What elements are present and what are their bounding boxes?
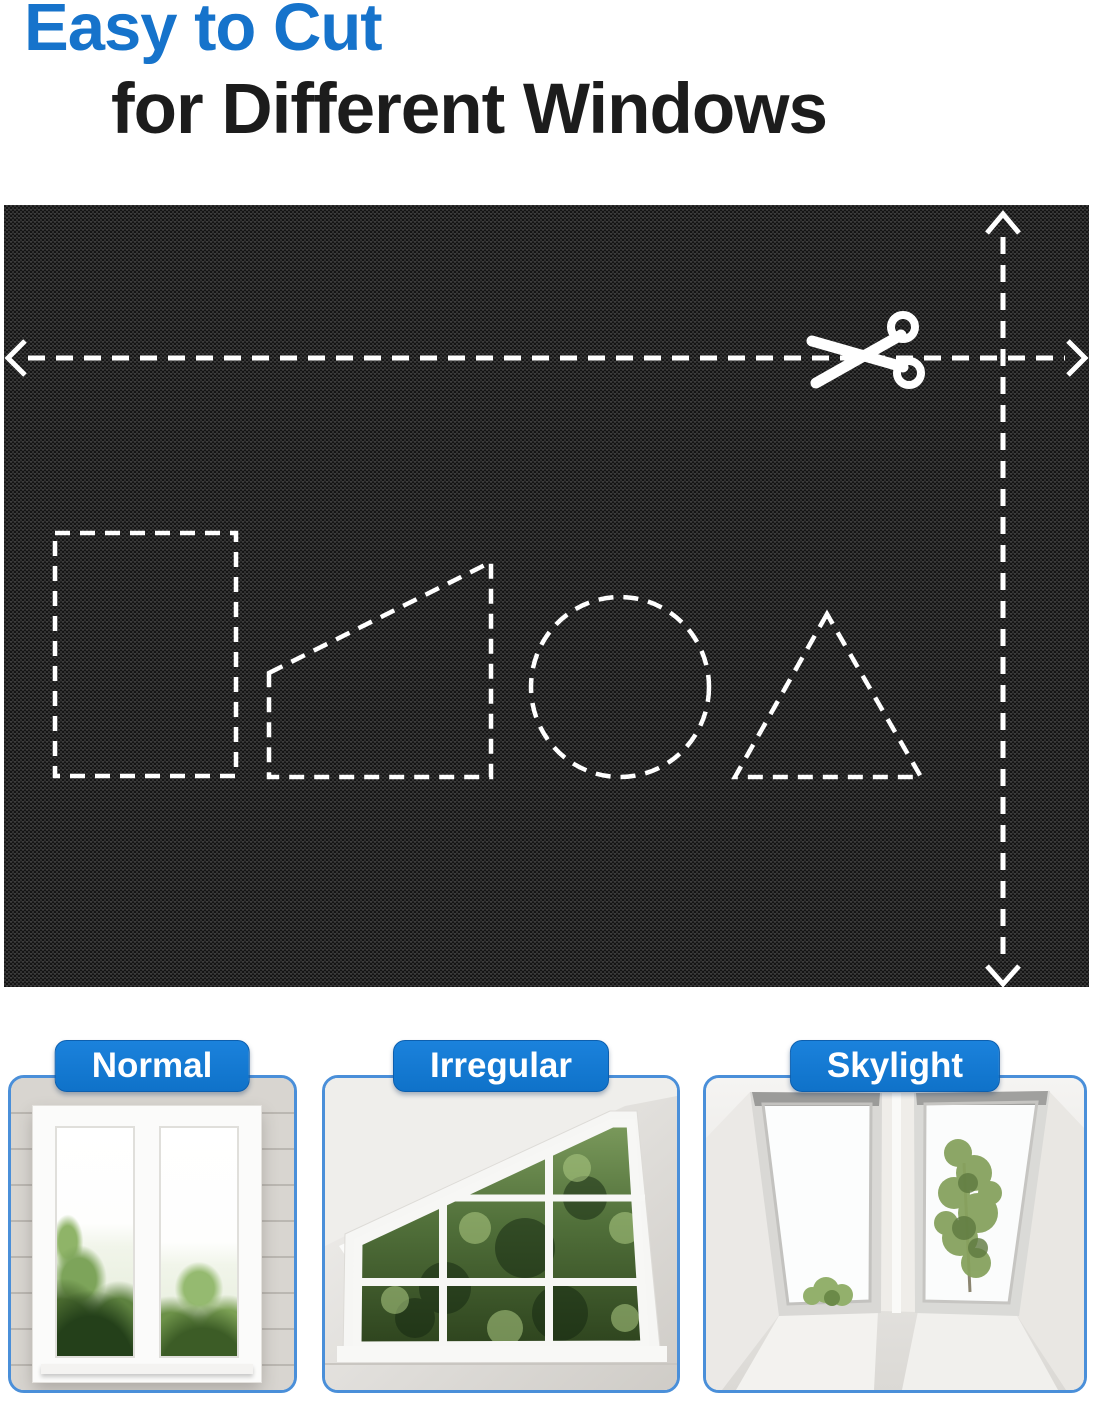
window-type-label-irregular: Irregular [393, 1040, 609, 1092]
scissors-icon [812, 315, 921, 385]
window-type-label-normal: Normal [55, 1040, 250, 1092]
normal-window-photo [11, 1078, 294, 1390]
window-pane-left [55, 1126, 135, 1358]
irregular-window-photo [325, 1078, 677, 1390]
fabric-swatch [4, 205, 1089, 987]
window-sill [41, 1364, 253, 1374]
trapezoid-cutout [269, 562, 491, 777]
window-type-card-normal [8, 1075, 297, 1393]
window-frame [33, 1106, 261, 1382]
window-pane-right [159, 1126, 239, 1358]
skylight-window-photo [706, 1078, 1084, 1390]
title-line-1: Easy to Cut [24, 0, 382, 61]
window-type-label-skylight: Skylight [790, 1040, 1000, 1092]
title-line-2: for Different Windows [111, 74, 827, 145]
cut-guides-overlay [4, 205, 1089, 987]
vertical-cut-arrow [987, 214, 1019, 984]
window-type-card-skylight [703, 1075, 1087, 1393]
circle-cutout [531, 597, 709, 777]
triangle-cutout [735, 614, 921, 777]
window-type-card-irregular [322, 1075, 680, 1393]
rectangle-cutout [55, 533, 236, 776]
page-root: Easy to Cut for Different Windows [0, 0, 1093, 1407]
